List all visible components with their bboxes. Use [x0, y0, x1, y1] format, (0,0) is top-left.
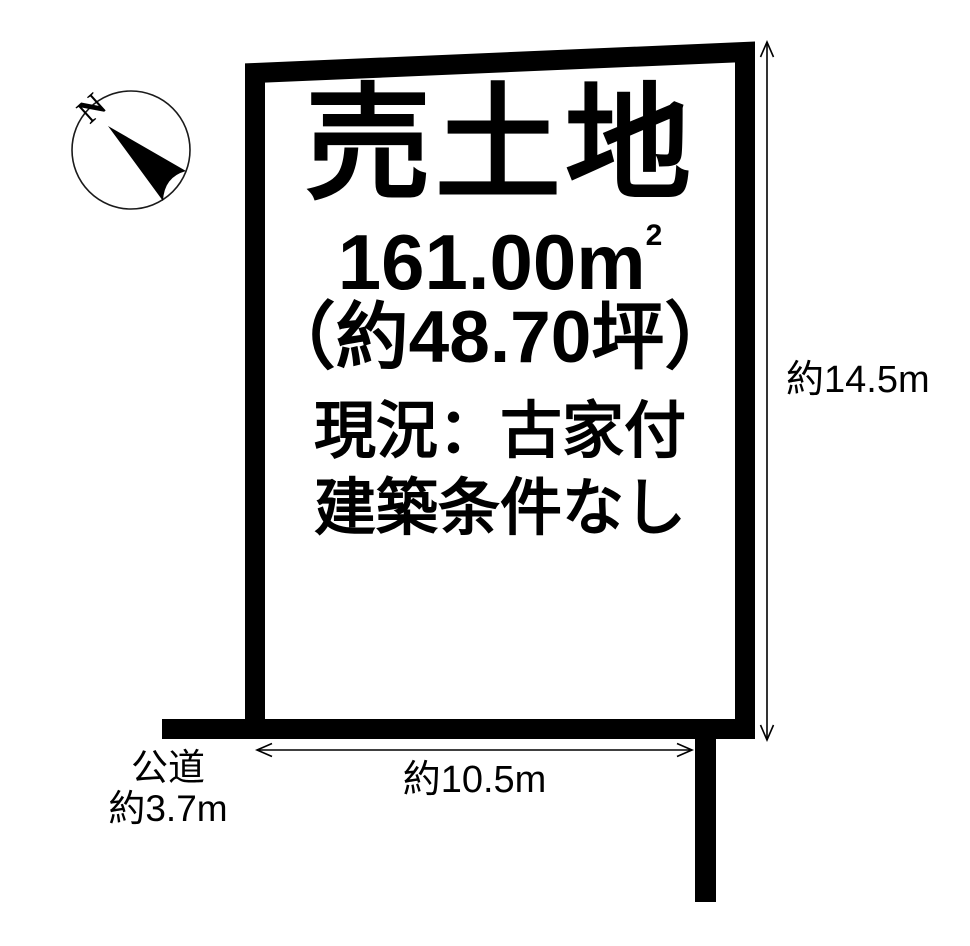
- plot-area-tsubo: （約48.70坪）: [255, 301, 745, 374]
- plot-status: 現況：古家付: [255, 401, 745, 463]
- road-label-line1: 公道: [93, 747, 243, 788]
- land-plot-diagram: N 売土地 161.00m2 （約48.70坪） 現況：古家付 建築条件なし 約…: [0, 0, 970, 946]
- area-superscript: 2: [646, 219, 663, 252]
- road-label-line2: 約3.7m: [93, 788, 243, 829]
- plot-area-m2: 161.00m2: [255, 221, 745, 301]
- plot-title: 売土地: [255, 82, 745, 208]
- plot-area-value: 161.00m: [338, 218, 646, 306]
- width-dimension-label: 約10.5m: [257, 761, 692, 799]
- road-label: 公道 約3.7m: [93, 747, 243, 829]
- plot-condition: 建築条件なし: [255, 478, 745, 540]
- width-dimension-arrow: [257, 744, 692, 757]
- height-dimension-arrow: [761, 42, 774, 740]
- height-dimension-label: 約14.5m: [786, 361, 930, 399]
